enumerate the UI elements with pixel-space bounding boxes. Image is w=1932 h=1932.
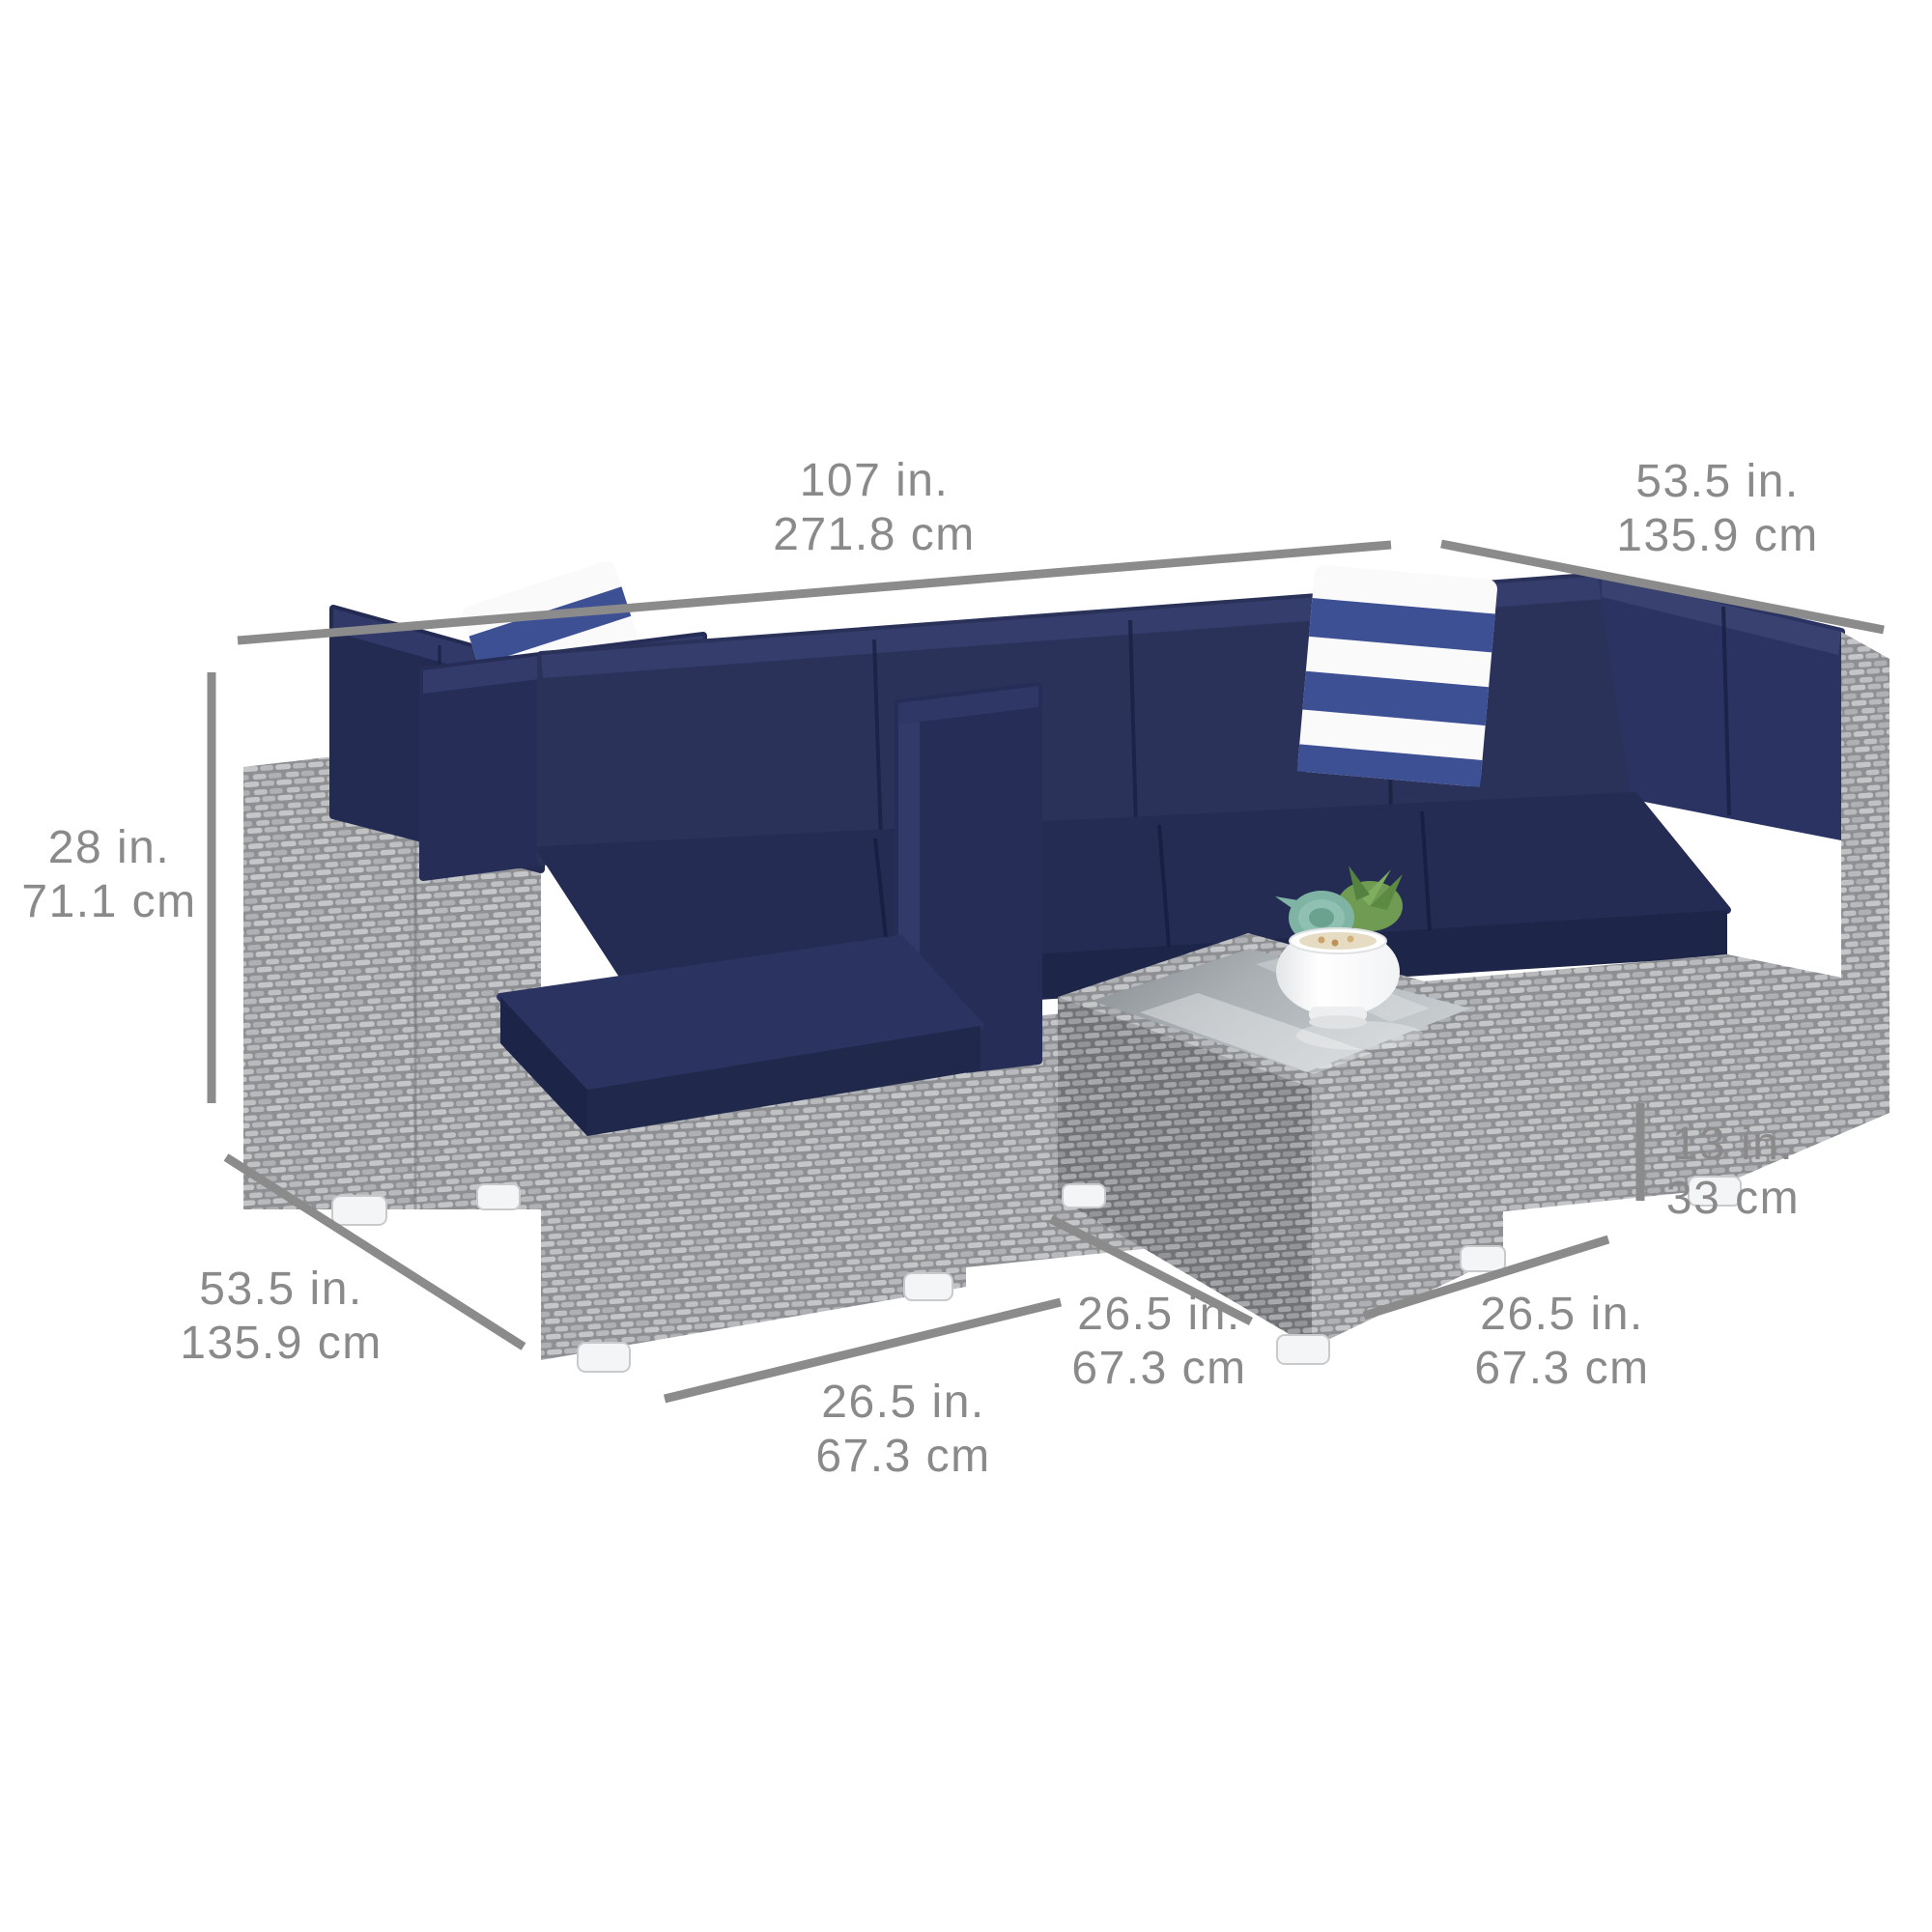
dimension-label-front-section-width: 26.5 in. 67.3 cm [815,1376,990,1484]
dimension-value-cm: 71.1 cm [21,875,196,929]
table-foot [1277,1335,1329,1364]
sofa-foot [578,1343,630,1372]
dimension-value-inches: 53.5 in. [180,1263,382,1317]
dimension-value-cm: 67.3 cm [815,1430,990,1484]
dimension-value-inches: 28 in. [21,821,196,875]
dimension-label-table-height: 13 in. 33 cm [1666,1118,1800,1226]
ottoman-section [500,939,980,1372]
table-foot [1461,1246,1505,1271]
dimension-label-table-depth: 26.5 in. 67.3 cm [1071,1288,1246,1396]
striped-pillow-right [1297,564,1498,787]
furniture-illustration [0,0,1932,1932]
dimension-value-inches: 26.5 in. [1071,1288,1246,1342]
dimension-value-inches: 26.5 in. [1474,1288,1649,1342]
dimension-label-left-depth: 53.5 in. 135.9 cm [180,1263,382,1371]
sofa-foot [477,1184,520,1209]
dimension-value-cm: 135.9 cm [180,1317,382,1371]
dimension-value-inches: 53.5 in. [1616,455,1818,509]
dimension-value-cm: 135.9 cm [1616,509,1818,563]
dimension-label-sofa-height: 28 in. 71.1 cm [21,821,196,929]
dimension-value-inches: 107 in. [773,454,975,508]
dimension-value-cm: 271.8 cm [773,508,975,562]
dimension-value-inches: 26.5 in. [815,1376,990,1430]
sofa-foot [332,1196,386,1225]
dimension-value-cm: 67.3 cm [1071,1342,1246,1396]
dimension-label-sofa-width: 107 in. 271.8 cm [773,454,975,562]
product-dimension-diagram: 107 in. 271.8 cm 53.5 in. 135.9 cm 28 in… [0,0,1932,1932]
table-foot [1063,1184,1105,1207]
dimension-value-cm: 33 cm [1666,1172,1800,1226]
dimension-value-inches: 13 in. [1666,1118,1800,1172]
dimension-label-right-depth: 53.5 in. 135.9 cm [1616,455,1818,563]
sofa-foot [904,1273,952,1300]
dimension-label-table-width: 26.5 in. 67.3 cm [1474,1288,1649,1396]
dimension-value-cm: 67.3 cm [1474,1342,1649,1396]
